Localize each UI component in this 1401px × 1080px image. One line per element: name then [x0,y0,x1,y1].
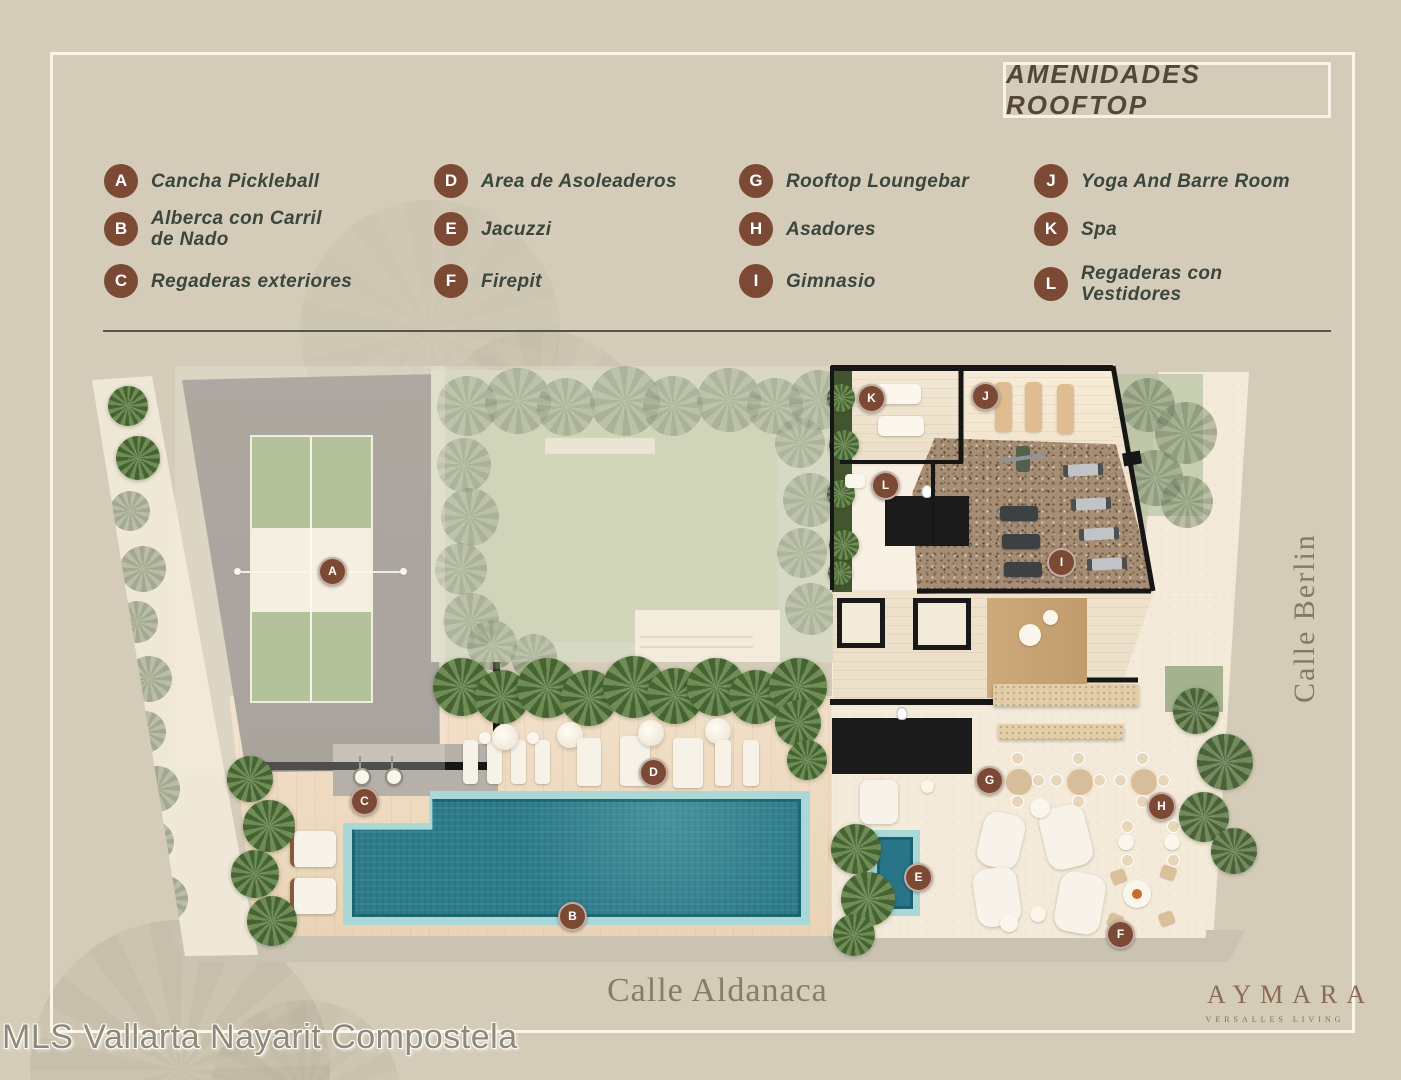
palm-tree [132,821,174,863]
service-box [837,598,885,648]
palm-tree [108,386,148,426]
chair [1114,774,1127,787]
yoga-mat [1025,382,1042,432]
plan-marker-i: I [1047,548,1076,577]
gym-bench [1002,534,1040,549]
faded-overlay [175,366,445,770]
umbrella [638,720,664,746]
plan-marker-f: F [1106,920,1135,949]
table [1004,767,1034,797]
barbell [1071,497,1112,511]
legend-marker-l: L [1034,267,1068,301]
palm-tree [134,766,180,812]
legend-label-g: Rooftop Loungebar [786,171,969,192]
palm-tree [231,850,279,898]
shower-stalls [832,718,972,774]
barbell [1063,463,1104,477]
lounger [715,740,731,786]
umbrella [492,724,518,750]
bar-table [1118,834,1134,850]
legend-marker-c: C [104,264,138,298]
legend-item-j: J Yoga And Barre Room [1034,157,1290,205]
legend-marker-a: A [104,164,138,198]
daybed [577,738,601,786]
plan-marker-k: K [857,384,886,413]
plan-marker-c: C [350,787,379,816]
toilet-rooms [885,496,969,546]
legend-item-a: A Cancha Pickleball [104,157,319,205]
palm-tree [120,546,166,592]
plan-marker-h: H [1147,792,1176,821]
legend-marker-d: D [434,164,468,198]
street-label-calle-berlin: Calle Berlin [1288,503,1322,703]
chair [1136,752,1149,765]
chair [1157,774,1170,787]
plan-marker-g: G [975,766,1004,795]
dining-set [1050,752,1106,808]
lounger [535,740,550,784]
side-table [1030,798,1050,818]
faded-overlay [431,366,835,662]
legend-marker-k: K [1034,212,1068,246]
title-box: AMENIDADES ROOFTOP [1003,62,1331,118]
legend-label-j: Yoga And Barre Room [1081,171,1290,192]
plan-marker-a: A [318,557,347,586]
plan-marker-l: L [871,471,900,500]
rooftop-amenities-plan: AMENIDADES ROOFTOP A Cancha Pickleball B… [0,0,1401,1080]
lounger [463,740,478,784]
palm-tree [124,711,166,753]
legend-item-f: F Firepit [434,257,542,305]
stool [921,780,934,793]
side-table [1030,906,1046,922]
chair [1093,774,1106,787]
palm-tree [827,384,855,412]
legend-label-l: Regaderas con Vestidores [1081,263,1222,305]
palm-tree [116,601,158,643]
legend-marker-h: H [739,212,773,246]
legend-item-h: H Asadores [739,205,876,253]
bench [860,780,898,824]
daybed [290,878,336,914]
legend-marker-i: I [739,264,773,298]
brand-logo: AYMARA VERSALLES LIVING [1198,980,1348,1024]
chair [1072,752,1085,765]
legend-label-b: Alberca con Carril de Nado [151,208,322,250]
watermark-text: MLS Vallarta Nayarit Compostela [2,1018,518,1057]
daybed [673,738,703,788]
palm-tree [829,530,859,560]
wood-nook [987,598,1087,698]
palm-tree [142,876,188,922]
chair [1167,820,1180,833]
chair [1032,774,1045,787]
palm-tree [787,740,827,780]
brand-name: AYMARA [1207,980,1348,1010]
legend-marker-j: J [1034,164,1068,198]
palm-tree [1161,476,1213,528]
plan-marker-e: E [904,863,933,892]
table [1019,624,1041,646]
palm-tree [829,430,859,460]
legend-marker-f: F [434,264,468,298]
gym-bench [1000,506,1038,521]
bar-counter [998,724,1124,739]
table [1065,767,1095,797]
legend-item-e: E Jacuzzi [434,205,551,253]
chair [1050,774,1063,787]
palm-tree [831,824,881,874]
yoga-mat [1057,384,1074,434]
lounger [743,740,759,786]
legend-marker-b: B [104,212,138,246]
chair [1011,752,1024,765]
site-plan: A B C D E F G H I J K L [75,358,1245,972]
legend-item-g: G Rooftop Loungebar [739,157,969,205]
chair [1121,854,1134,867]
legend-item-b: B Alberca con Carril de Nado [104,205,322,253]
legend-label-e: Jacuzzi [481,219,551,240]
palm-tree [116,436,160,480]
fire-icon [1132,889,1142,899]
barbell [1087,557,1128,571]
legend-label-a: Cancha Pickleball [151,171,319,192]
legend-item-d: D Area de Asoleaderos [434,157,677,205]
barbell [1079,527,1120,541]
plan-marker-j: J [971,382,1000,411]
daybed [290,831,336,867]
massage-bed [878,416,924,436]
brand-tagline: VERSALLES LIVING [1202,1015,1348,1024]
page-title: AMENIDADES ROOFTOP [1006,59,1328,121]
legend-label-f: Firepit [481,271,542,292]
palm-tree [247,896,297,946]
palm-tree [1197,734,1253,790]
legend-item-c: C Regaderas exteriores [104,257,352,305]
shower-head [353,768,371,786]
side-table [479,732,491,744]
palm-tree [775,700,821,746]
shower-head [385,768,403,786]
service-box [913,598,971,650]
sink [845,474,865,488]
palm-tree [1173,688,1219,734]
legend-label-h: Asadores [786,219,876,240]
chair [1043,610,1058,625]
palm-tree [1211,828,1257,874]
legend-marker-g: G [739,164,773,198]
gym-bench [1004,562,1042,577]
legend-label-k: Spa [1081,219,1117,240]
plan-marker-b: B [558,902,587,931]
palm-tree [833,914,875,956]
pouf [1000,914,1018,932]
legend-marker-e: E [434,212,468,246]
legend-divider [103,330,1331,332]
legend-item-i: I Gimnasio [739,257,876,305]
palm-tree [828,561,852,585]
legend-label-i: Gimnasio [786,271,876,292]
palm-tree [227,756,273,802]
palm-tree [126,656,172,702]
bar-table [1164,834,1180,850]
plan-marker-d: D [639,758,668,787]
bar-counter [993,684,1139,706]
legend-item-l: L Regaderas con Vestidores [1034,260,1222,308]
legend-item-k: K Spa [1034,205,1117,253]
palm-tree [243,800,295,852]
legend-label-d: Area de Asoleaderos [481,171,677,192]
legend-label-c: Regaderas exteriores [151,271,352,292]
chair [1121,820,1134,833]
street-label-calle-aldanaca: Calle Aldanaca [607,972,828,1010]
palm-tree [110,491,150,531]
side-table [527,732,539,744]
chair [1011,795,1024,808]
